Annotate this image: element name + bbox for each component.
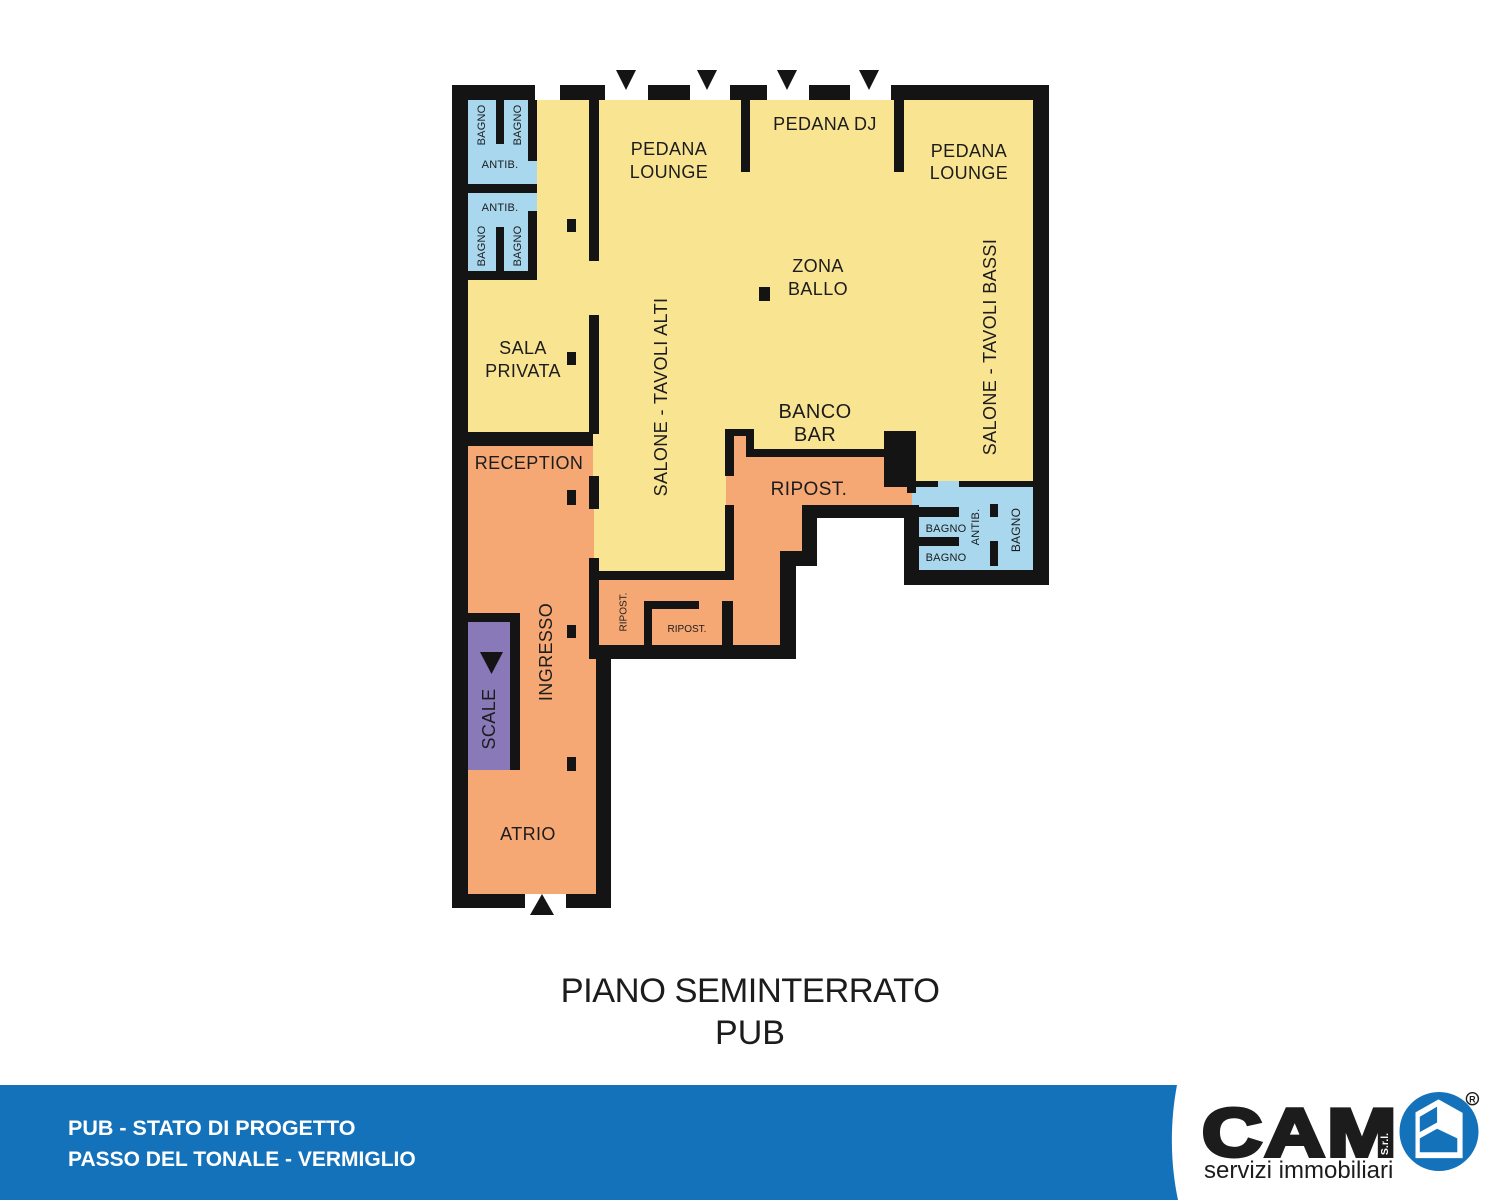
svg-text:servizi immobiliari: servizi immobiliari bbox=[1204, 1157, 1393, 1184]
svg-text:BAGNO: BAGNO bbox=[476, 225, 488, 266]
svg-text:PASSO DEL TONALE - VERMIGLIO: PASSO DEL TONALE - VERMIGLIO bbox=[68, 1148, 416, 1171]
svg-text:SCALE: SCALE bbox=[479, 688, 499, 749]
svg-text:BAGNO: BAGNO bbox=[926, 523, 967, 535]
svg-text:RIPOST.: RIPOST. bbox=[668, 624, 707, 635]
svg-text:S.r.l.: S.r.l. bbox=[1379, 1133, 1391, 1155]
svg-text:LOUNGE: LOUNGE bbox=[630, 162, 708, 182]
svg-text:ZONA: ZONA bbox=[792, 256, 844, 276]
svg-text:BAR: BAR bbox=[794, 424, 836, 446]
svg-text:BAGNO: BAGNO bbox=[926, 552, 967, 564]
svg-text:PIANO SEMINTERRATO: PIANO SEMINTERRATO bbox=[561, 972, 940, 1010]
svg-text:PUB - STATO DI PROGETTO: PUB - STATO DI PROGETTO bbox=[68, 1116, 355, 1140]
svg-text:BAGNO: BAGNO bbox=[512, 104, 524, 145]
svg-text:PEDANA DJ: PEDANA DJ bbox=[773, 114, 877, 134]
svg-text:PEDANA: PEDANA bbox=[931, 141, 1007, 161]
svg-text:ANTIB.: ANTIB. bbox=[482, 202, 519, 214]
svg-text:RIPOST.: RIPOST. bbox=[771, 479, 848, 500]
svg-text:BAGNO: BAGNO bbox=[1009, 508, 1023, 552]
svg-text:BAGNO: BAGNO bbox=[512, 225, 524, 266]
svg-text:BANCO: BANCO bbox=[778, 401, 851, 423]
svg-text:BAGNO: BAGNO bbox=[476, 104, 488, 145]
svg-text:SALONE - TAVOLI BASSI: SALONE - TAVOLI BASSI bbox=[980, 239, 1000, 455]
svg-text:R: R bbox=[1469, 1095, 1476, 1105]
svg-text:SALONE - TAVOLI ALTI: SALONE - TAVOLI ALTI bbox=[651, 298, 671, 497]
svg-text:ATRIO: ATRIO bbox=[500, 824, 556, 844]
svg-text:ANTIB.: ANTIB. bbox=[482, 159, 519, 171]
svg-text:PUB: PUB bbox=[715, 1014, 785, 1052]
svg-text:ANTIB.: ANTIB. bbox=[970, 509, 982, 546]
svg-text:BALLO: BALLO bbox=[788, 279, 848, 299]
svg-text:LOUNGE: LOUNGE bbox=[930, 163, 1008, 183]
svg-text:RECEPTION: RECEPTION bbox=[475, 453, 584, 473]
svg-text:RIPOST.: RIPOST. bbox=[619, 593, 630, 632]
svg-text:PEDANA: PEDANA bbox=[631, 139, 707, 159]
svg-text:SALA: SALA bbox=[499, 338, 547, 358]
svg-text:INGRESSO: INGRESSO bbox=[536, 603, 556, 701]
svg-text:PRIVATA: PRIVATA bbox=[485, 361, 561, 381]
